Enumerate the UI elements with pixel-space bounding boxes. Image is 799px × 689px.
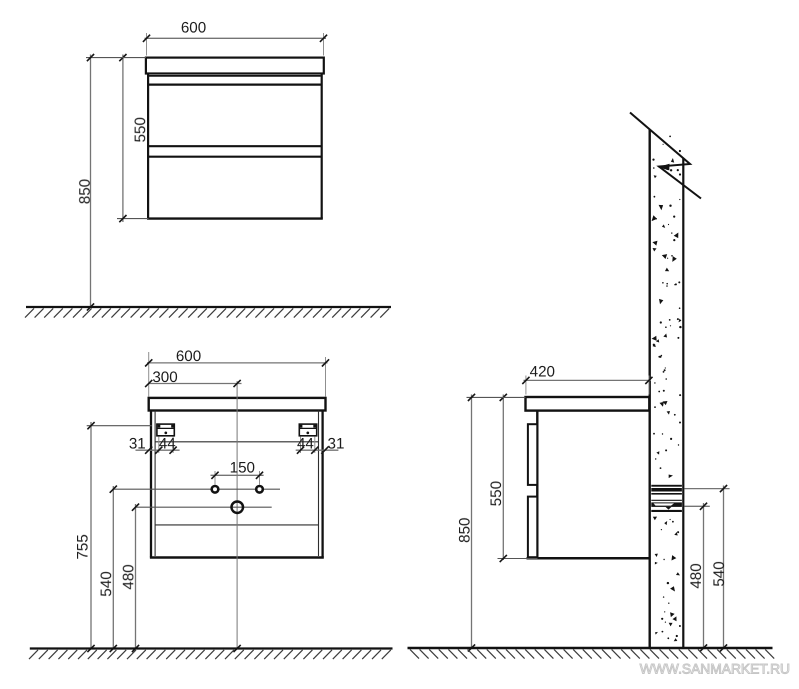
svg-text:WWW.SANMARKET.RU: WWW.SANMARKET.RU: [640, 662, 790, 677]
svg-text:550: 550: [488, 481, 505, 506]
svg-text:850: 850: [77, 179, 94, 204]
svg-text:540: 540: [711, 561, 728, 586]
svg-text:44: 44: [159, 436, 176, 453]
svg-text:150: 150: [230, 460, 255, 477]
svg-text:850: 850: [457, 518, 474, 543]
svg-text:550: 550: [132, 117, 149, 142]
svg-text:31: 31: [129, 436, 146, 453]
svg-text:44: 44: [297, 436, 314, 453]
svg-text:600: 600: [181, 20, 206, 37]
svg-text:755: 755: [74, 534, 91, 559]
svg-text:300: 300: [152, 369, 177, 386]
svg-text:420: 420: [530, 363, 555, 380]
svg-text:600: 600: [176, 348, 201, 365]
svg-text:540: 540: [98, 571, 115, 596]
svg-text:480: 480: [120, 564, 137, 589]
svg-text:31: 31: [328, 436, 345, 453]
svg-text:480: 480: [688, 563, 705, 588]
